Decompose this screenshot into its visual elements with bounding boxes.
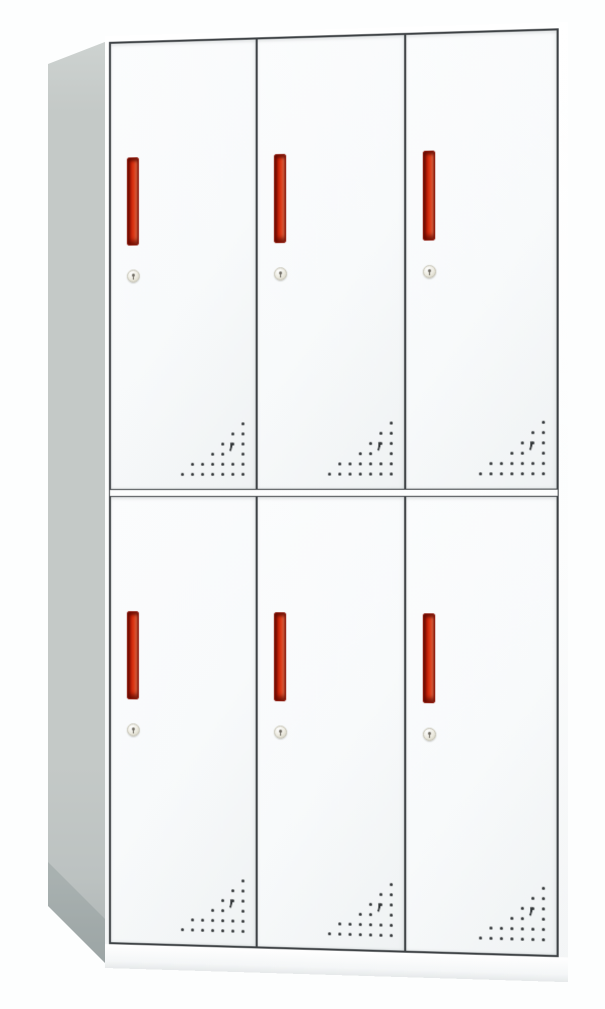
vent-hole (201, 919, 204, 922)
vent-hole (369, 913, 372, 916)
vent-hole (380, 893, 383, 896)
vent-hole (500, 472, 503, 475)
vent-hole (211, 463, 214, 466)
vent-crescent-slot (373, 440, 381, 453)
vent-hole (510, 917, 513, 920)
vent-hole (241, 889, 244, 892)
vent-hole (510, 452, 513, 455)
door-handle (423, 613, 435, 703)
vent-hole (231, 432, 234, 435)
vent-hole (380, 472, 383, 475)
vent-hole (369, 442, 372, 445)
product-photo (0, 0, 605, 1009)
vent-hole (339, 473, 342, 476)
vent-hole (211, 473, 214, 476)
vent-hole (339, 462, 342, 465)
vent-hole (390, 432, 393, 435)
vent-hole (390, 422, 393, 425)
vent-hole (359, 462, 362, 465)
vent-hole (521, 462, 524, 465)
vent-hole (542, 421, 545, 424)
locker-door-3 (406, 29, 558, 489)
ventilation-holes (181, 422, 246, 477)
vent-hole (521, 472, 524, 475)
vent-hole (339, 933, 342, 936)
vent-hole (369, 933, 372, 936)
vent-hole (241, 432, 244, 435)
vent-crescent-slot (524, 439, 533, 452)
key-lock (274, 267, 287, 280)
vent-hole (510, 472, 513, 475)
vent-crescent-slot (524, 904, 533, 917)
vent-hole (521, 907, 524, 910)
vent-hole (542, 907, 545, 910)
vent-hole (390, 462, 393, 465)
keyhole-icon (279, 730, 282, 733)
vent-hole (542, 897, 545, 900)
vent-hole (531, 897, 534, 900)
vent-hole (489, 472, 492, 475)
vent-hole (489, 462, 492, 465)
locker-door-1 (110, 38, 256, 490)
vent-hole (390, 472, 393, 475)
vent-hole (241, 422, 244, 425)
vent-hole (390, 893, 393, 896)
vent-hole (349, 462, 352, 465)
locker-door-5 (256, 496, 405, 952)
vent-hole (531, 472, 534, 475)
vent-hole (191, 918, 194, 921)
door-handle (274, 612, 286, 701)
vent-hole (521, 452, 524, 455)
vent-hole (231, 889, 234, 892)
locker-door-4 (110, 496, 256, 947)
vent-hole (211, 919, 214, 922)
key-lock (274, 725, 287, 738)
vent-hole (489, 926, 492, 929)
ventilation-holes (328, 881, 394, 938)
keyhole-icon (428, 732, 431, 735)
vent-hole (390, 903, 393, 906)
door-grid (109, 28, 559, 957)
vent-crescent-slot (224, 440, 232, 453)
vent-hole (349, 933, 352, 936)
vent-hole (521, 441, 524, 444)
vent-hole (328, 932, 331, 935)
vent-hole (191, 928, 194, 931)
vent-hole (221, 929, 224, 932)
vent-hole (328, 473, 331, 476)
vent-hole (241, 879, 244, 882)
vent-hole (191, 463, 194, 466)
vent-hole (380, 934, 383, 937)
vent-hole (221, 453, 224, 456)
vent-hole (531, 431, 534, 434)
vent-hole (201, 463, 204, 466)
vent-hole (380, 923, 383, 926)
ventilation-holes (479, 885, 546, 942)
vent-hole (181, 928, 184, 931)
vent-hole (241, 463, 244, 466)
vent-hole (542, 928, 545, 931)
vent-hole (201, 473, 204, 476)
vent-hole (390, 914, 393, 917)
vent-hole (221, 919, 224, 922)
vent-hole (542, 472, 545, 475)
vent-hole (221, 463, 224, 466)
vent-hole (542, 938, 545, 941)
vent-hole (479, 472, 482, 475)
vent-hole (500, 927, 503, 930)
vent-hole (390, 883, 393, 886)
vent-hole (339, 922, 342, 925)
vent-hole (231, 473, 234, 476)
vent-hole (241, 453, 244, 456)
vent-hole (221, 909, 224, 912)
keyhole-icon (132, 727, 135, 730)
vent-hole (542, 918, 545, 921)
vent-hole (390, 452, 393, 455)
vent-hole (191, 473, 194, 476)
vent-hole (359, 923, 362, 926)
vent-hole (241, 920, 244, 923)
vent-hole (211, 453, 214, 456)
vent-hole (500, 462, 503, 465)
vent-hole (221, 443, 224, 446)
vent-hole (369, 462, 372, 465)
vent-hole (531, 928, 534, 931)
vent-hole (390, 934, 393, 937)
vent-hole (510, 462, 513, 465)
vent-hole (489, 937, 492, 940)
vent-hole (221, 473, 224, 476)
vent-crescent-slot (224, 897, 232, 910)
locker-door-2 (256, 34, 405, 490)
vent-hole (380, 462, 383, 465)
vent-hole (181, 473, 184, 476)
vent-hole (241, 930, 244, 933)
vent-hole (211, 909, 214, 912)
vent-hole (211, 929, 214, 932)
vent-hole (231, 930, 234, 933)
vent-hole (241, 900, 244, 903)
key-lock (127, 269, 140, 282)
vent-hole (531, 938, 534, 941)
vent-hole (510, 937, 513, 940)
vent-hole (369, 903, 372, 906)
cabinet-side-panel (48, 38, 110, 970)
vent-hole (359, 452, 362, 455)
vent-hole (542, 887, 545, 890)
keyhole-icon (279, 271, 282, 274)
key-lock (127, 723, 140, 736)
door-handle (423, 151, 435, 241)
vent-hole (500, 937, 503, 940)
vent-hole (380, 432, 383, 435)
vent-hole (241, 910, 244, 913)
vent-hole (521, 927, 524, 930)
vent-hole (231, 919, 234, 922)
vent-hole (390, 924, 393, 927)
vent-hole (390, 442, 393, 445)
vent-hole (359, 473, 362, 476)
vent-hole (479, 936, 482, 939)
vent-hole (542, 441, 545, 444)
vent-hole (201, 929, 204, 932)
cabinet-front (105, 22, 568, 982)
keyhole-icon (428, 269, 431, 272)
vent-hole (542, 431, 545, 434)
door-handle (274, 154, 286, 243)
vent-hole (510, 927, 513, 930)
vent-hole (521, 938, 524, 941)
vent-hole (231, 463, 234, 466)
keyhole-icon (132, 274, 135, 277)
vent-hole (359, 933, 362, 936)
ventilation-holes (181, 878, 246, 934)
door-handle (127, 157, 139, 245)
vent-hole (241, 442, 244, 445)
vent-hole (349, 923, 352, 926)
locker-door-6 (406, 496, 558, 956)
vent-hole (359, 913, 362, 916)
ventilation-holes (328, 421, 394, 476)
vent-hole (369, 452, 372, 455)
vent-hole (521, 917, 524, 920)
door-handle (127, 611, 139, 699)
vent-hole (369, 472, 372, 475)
vent-hole (542, 452, 545, 455)
vent-hole (241, 473, 244, 476)
vent-hole (221, 899, 224, 902)
vent-hole (531, 462, 534, 465)
vent-hole (369, 923, 372, 926)
vent-hole (542, 462, 545, 465)
vent-hole (349, 473, 352, 476)
key-lock (423, 265, 436, 278)
key-lock (423, 728, 436, 741)
ventilation-holes (479, 421, 546, 477)
